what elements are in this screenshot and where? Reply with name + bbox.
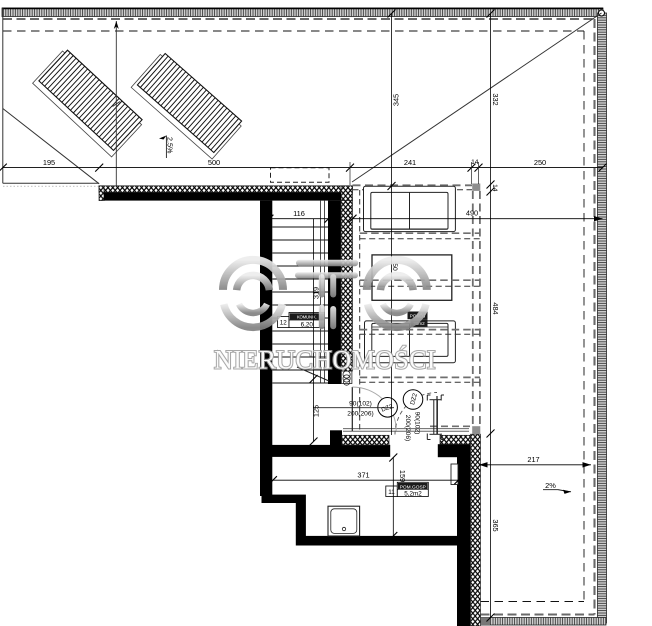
svg-text:365: 365 bbox=[491, 519, 500, 531]
svg-text:159: 159 bbox=[398, 470, 407, 482]
svg-text:490: 490 bbox=[466, 209, 478, 218]
svg-text:NIERUCHOMOŚCI: NIERUCHOMOŚCI bbox=[214, 346, 436, 375]
svg-text:241: 241 bbox=[404, 158, 416, 167]
svg-text:217: 217 bbox=[527, 455, 539, 464]
svg-text:125: 125 bbox=[311, 405, 320, 417]
svg-text:200(206): 200(206) bbox=[347, 410, 373, 417]
svg-text:2%: 2% bbox=[545, 481, 556, 490]
svg-text:6,20: 6,20 bbox=[301, 321, 314, 328]
svg-text:332: 332 bbox=[491, 93, 500, 105]
svg-text:345: 345 bbox=[391, 94, 400, 106]
svg-text:116: 116 bbox=[293, 209, 305, 218]
svg-text:371: 371 bbox=[357, 470, 369, 479]
svg-text:195: 195 bbox=[43, 158, 55, 167]
svg-text:12: 12 bbox=[280, 320, 288, 327]
svg-text:500: 500 bbox=[208, 158, 220, 167]
svg-text:2.5%: 2.5% bbox=[165, 137, 174, 154]
svg-text:14: 14 bbox=[491, 184, 498, 192]
svg-text:90(102): 90(102) bbox=[349, 400, 372, 407]
svg-text:5,2m2: 5,2m2 bbox=[404, 491, 422, 498]
svg-text:11: 11 bbox=[388, 489, 395, 496]
svg-text:14: 14 bbox=[471, 159, 479, 166]
svg-text:200(206): 200(206) bbox=[404, 415, 411, 441]
svg-text:90(102): 90(102) bbox=[414, 412, 421, 435]
svg-text:250: 250 bbox=[534, 158, 546, 167]
svg-text:484: 484 bbox=[491, 302, 500, 314]
